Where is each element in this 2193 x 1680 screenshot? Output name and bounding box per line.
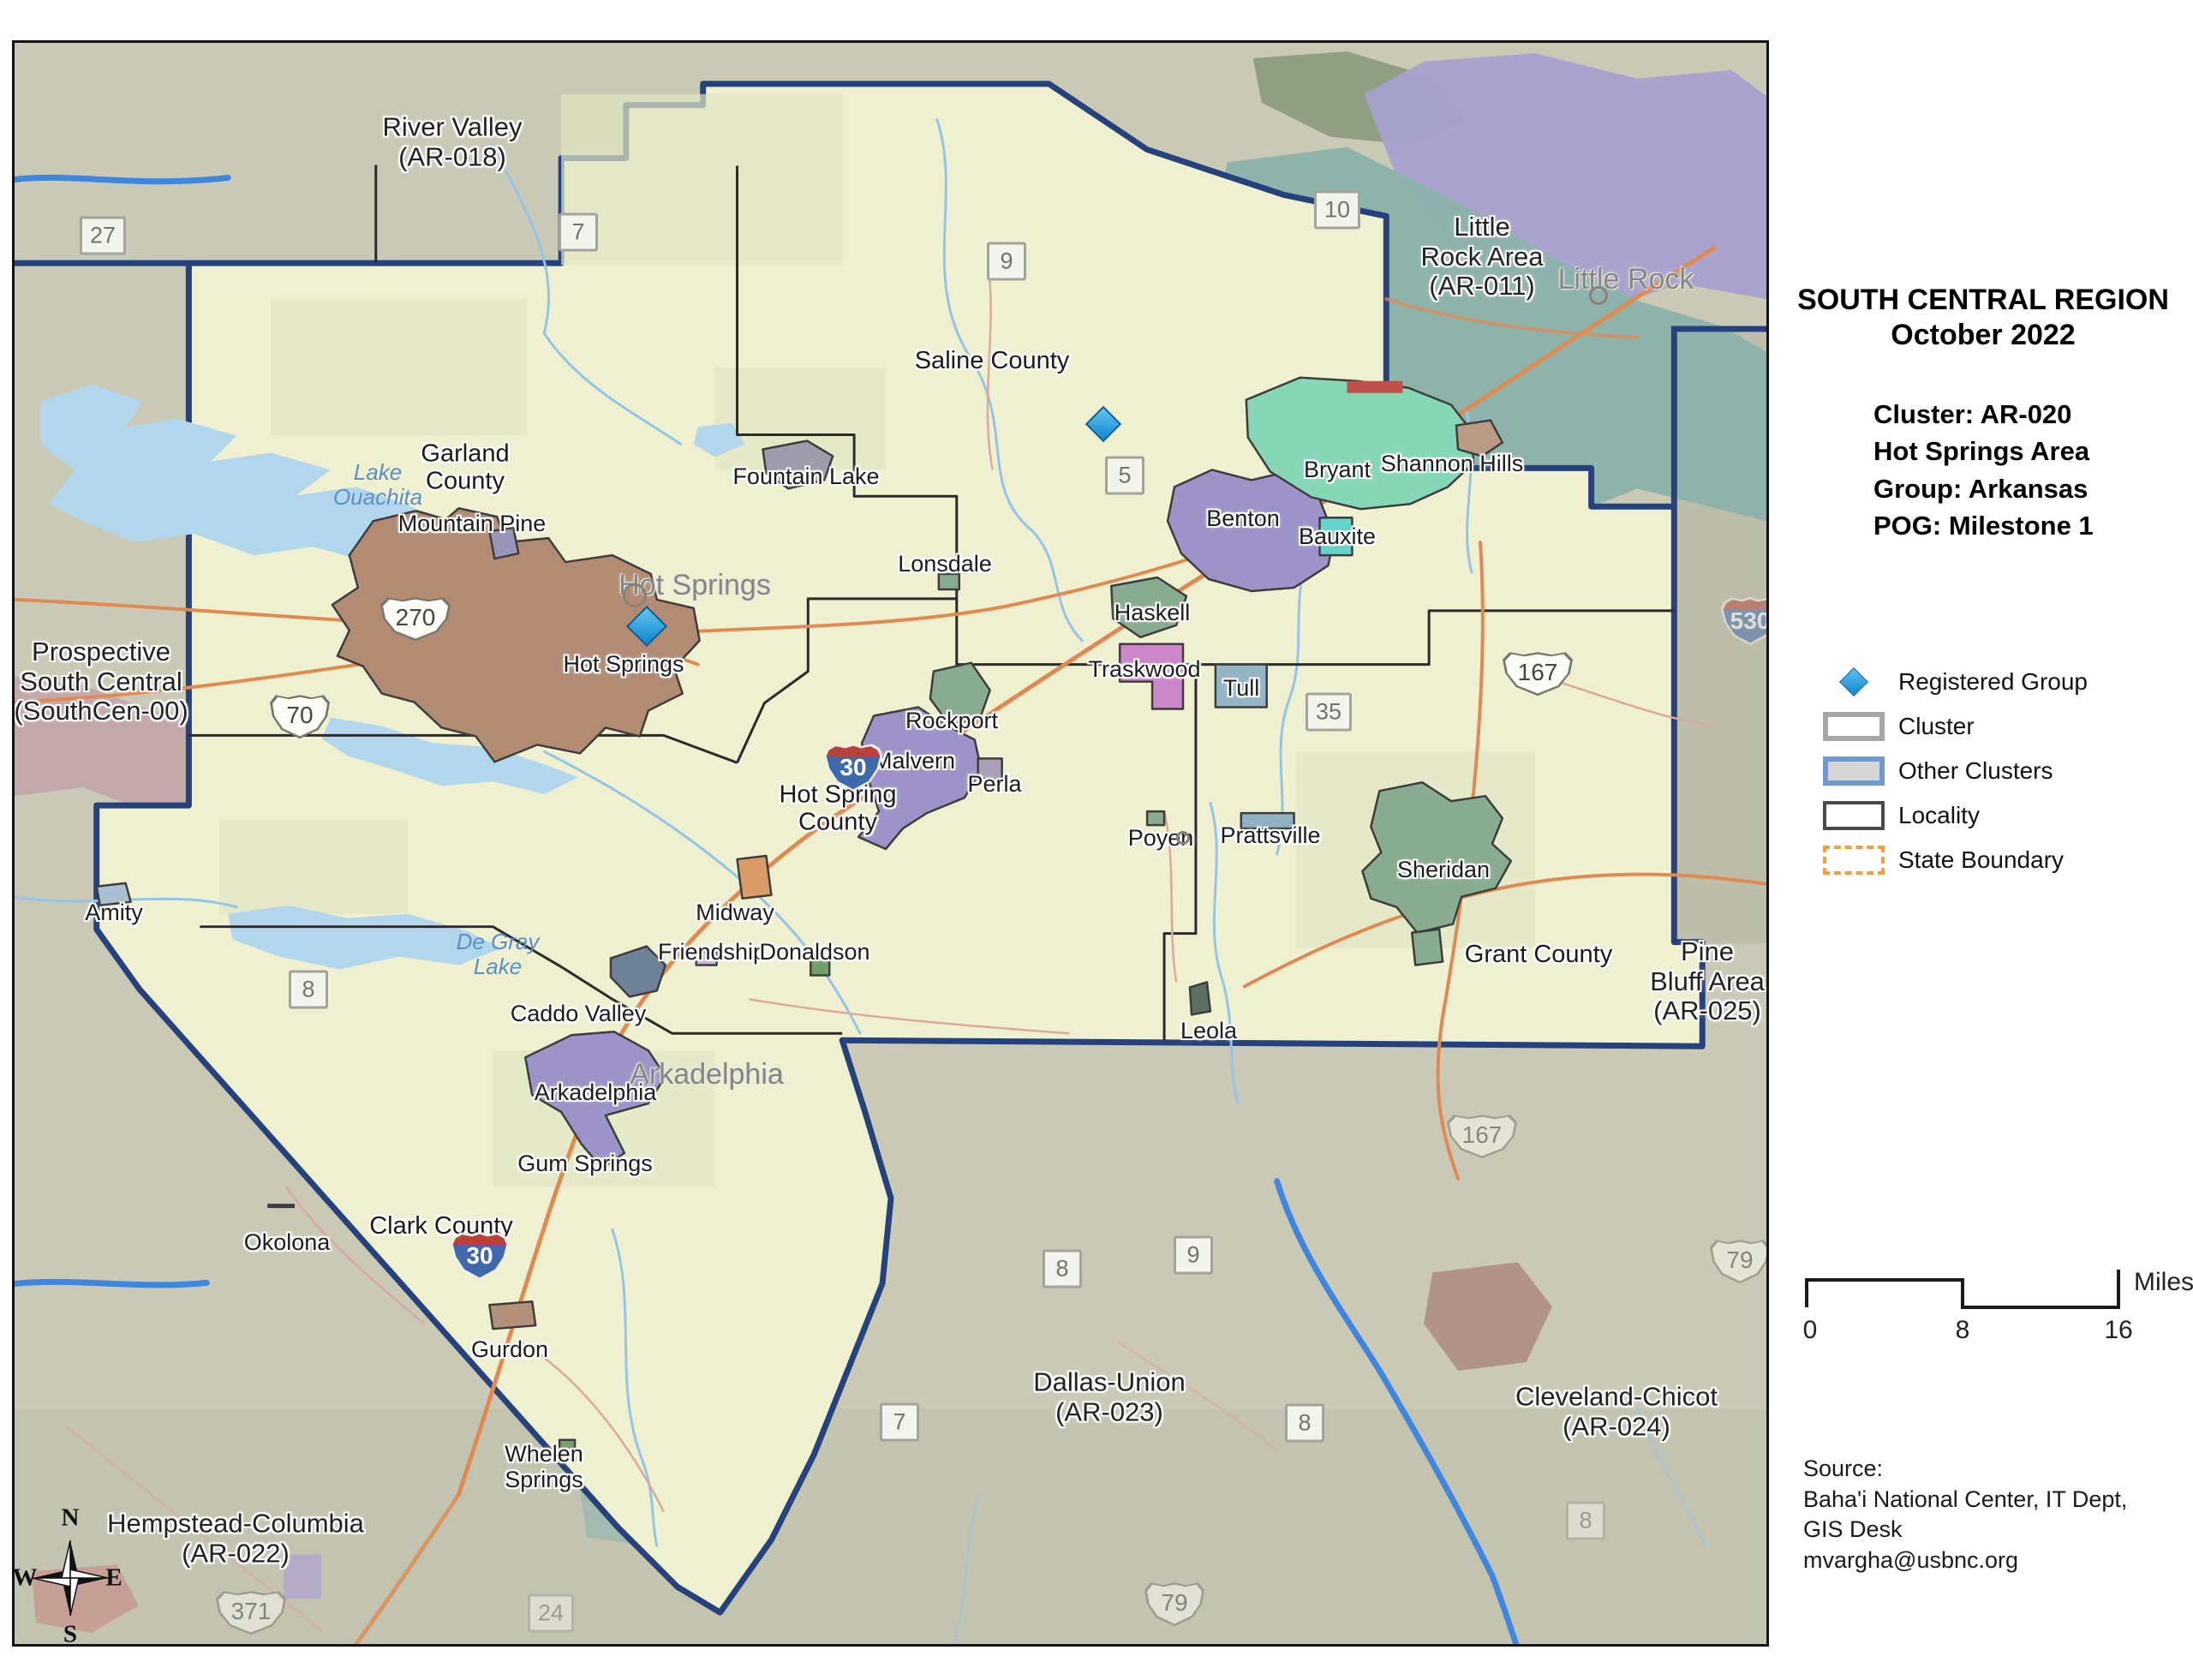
us-shield-number: 167 bbox=[1518, 659, 1558, 686]
label-midway-line: Midway bbox=[696, 900, 774, 925]
label-grant-county: Grant County bbox=[1465, 941, 1612, 968]
legend-swatch-cell bbox=[1816, 672, 1891, 692]
label-lake-ouachita-line: Lake bbox=[333, 460, 422, 485]
label-little-rock-metro-line: Little Rock bbox=[1558, 263, 1694, 296]
label-whelen-springs-line: Whelen bbox=[505, 1441, 583, 1467]
label-benton: Benton bbox=[1206, 505, 1280, 531]
label-perla: Perla bbox=[967, 771, 1021, 797]
label-midway: Midway bbox=[696, 900, 774, 925]
legend-swatch-cell bbox=[1816, 801, 1891, 830]
cluster-info-group: Group: Arkansas bbox=[1873, 470, 2094, 507]
legend-item-diamond: Registered Group bbox=[1816, 660, 2184, 704]
legend-swatch-other bbox=[1823, 756, 1885, 786]
label-whelen-springs-line: Springs bbox=[505, 1467, 583, 1492]
highway-shield-8: 8 bbox=[1285, 1404, 1324, 1443]
highway-shield-9: 9 bbox=[987, 242, 1026, 281]
cluster-info-pog: POG: Milestone 1 bbox=[1873, 507, 2094, 544]
label-dallas-union-line: (AR-023) bbox=[1033, 1397, 1185, 1427]
label-saline-county: Saline County bbox=[915, 347, 1070, 374]
label-okolona: Okolona bbox=[244, 1229, 331, 1255]
registered-group-diamond-icon bbox=[1085, 406, 1121, 442]
hot-springs-town-dot bbox=[623, 583, 647, 607]
label-prospective-south-central-line: South Central bbox=[14, 667, 188, 697]
label-amity-line: Amity bbox=[85, 900, 143, 925]
label-garland-county: GarlandCounty bbox=[421, 440, 509, 496]
highway-shield-30: 30 bbox=[823, 742, 883, 793]
label-hempstead-columbia-line: Hempstead-Columbia bbox=[107, 1509, 364, 1539]
source-line: Source: bbox=[1803, 1454, 2127, 1485]
label-perla-line: Perla bbox=[967, 771, 1021, 797]
label-pine-bluff-area-line: Pine bbox=[1650, 937, 1765, 967]
map-canvas: N E S W River Valley(AR-018)LittleRock A… bbox=[12, 40, 1769, 1647]
legend-label-locality: Locality bbox=[1898, 802, 1980, 829]
label-fountain-lake: Fountain Lake bbox=[732, 463, 879, 489]
label-saline-county-line: Saline County bbox=[915, 347, 1070, 374]
map-title-line1: SOUTH CENTRAL REGION bbox=[1782, 283, 2184, 318]
scale-tick-0: 0 bbox=[1803, 1316, 1818, 1345]
legend-swatch-cell bbox=[1816, 846, 1891, 875]
highway-shield-8: 8 bbox=[1043, 1250, 1082, 1288]
label-grant-county-line: Grant County bbox=[1465, 941, 1612, 968]
label-mountain-pine: Mountain Pine bbox=[398, 511, 547, 536]
legend-swatch-cell bbox=[1816, 756, 1891, 786]
source-note: Source: Baha'i National Center, IT Dept,… bbox=[1803, 1454, 2127, 1576]
map-title-line2: October 2022 bbox=[1782, 318, 2184, 353]
label-de-gray-lake-line: De Gray bbox=[457, 930, 540, 954]
legend-label-state: State Boundary bbox=[1898, 846, 2064, 874]
legend-label-other: Other Clusters bbox=[1898, 757, 2053, 785]
scale-unit: Miles bbox=[2134, 1268, 2193, 1297]
label-pine-bluff-area-line: (AR-025) bbox=[1650, 996, 1765, 1026]
label-lake-ouachita-line: Ouachita bbox=[333, 485, 422, 510]
label-bauxite: Bauxite bbox=[1299, 523, 1376, 549]
registered-group-marker bbox=[632, 612, 661, 641]
highway-shield-371: 371 bbox=[216, 1587, 286, 1636]
label-cleveland-chicot-line: Cleveland-Chicot bbox=[1515, 1382, 1718, 1412]
label-traskwood: Traskwood bbox=[1088, 656, 1200, 682]
label-bryant: Bryant bbox=[1304, 457, 1371, 482]
legend-item-cluster: Cluster bbox=[1816, 704, 2184, 749]
highway-shield-70: 70 bbox=[270, 691, 330, 740]
scale-bar-graphic bbox=[1803, 1266, 2180, 1318]
source-line: Baha'i National Center, IT Dept, bbox=[1803, 1485, 2127, 1516]
label-friendship: Friendship bbox=[658, 939, 766, 965]
legend-item-state: State Boundary bbox=[1816, 838, 2184, 882]
label-prospective-south-central-line: (SouthCen-00) bbox=[14, 697, 188, 726]
label-prospective-south-central-line: Prospective bbox=[14, 637, 188, 667]
label-little-rock-area-line: (AR-011) bbox=[1420, 272, 1543, 302]
label-prospective-south-central: ProspectiveSouth Central(SouthCen-00) bbox=[14, 637, 188, 726]
label-de-gray-lake-line: Lake bbox=[457, 954, 540, 979]
highway-shield-7: 7 bbox=[559, 213, 598, 252]
label-tull: Tull bbox=[1223, 675, 1260, 701]
cluster-info-name: Hot Springs Area bbox=[1873, 433, 2094, 469]
us-shield-number: 79 bbox=[1726, 1247, 1753, 1274]
label-lonsdale-line: Lonsdale bbox=[898, 551, 992, 577]
label-dallas-union: Dallas-Union(AR-023) bbox=[1033, 1367, 1185, 1426]
label-arkadelphia-metro: Arkadelphia bbox=[630, 1058, 784, 1091]
legend-swatch-cluster bbox=[1823, 712, 1885, 741]
label-pine-bluff-area: PineBluff Area(AR-025) bbox=[1650, 937, 1765, 1026]
highway-shield-35: 35 bbox=[1306, 693, 1352, 732]
source-line: GIS Desk bbox=[1803, 1515, 2127, 1545]
us-shield-number: 70 bbox=[286, 702, 313, 729]
little-rock-town-dot bbox=[1589, 286, 1608, 305]
interstate-shield-number: 530 bbox=[1730, 607, 1769, 635]
compass-w: W bbox=[13, 1564, 38, 1593]
label-donaldson: Donaldson bbox=[759, 939, 869, 965]
label-malvern-line: Malvern bbox=[873, 748, 955, 774]
label-gurdon: Gurdon bbox=[471, 1336, 548, 1362]
highway-shield-9: 9 bbox=[1174, 1236, 1213, 1275]
label-okolona-line: Okolona bbox=[244, 1229, 331, 1255]
label-traskwood-line: Traskwood bbox=[1088, 656, 1200, 682]
label-friendship-line: Friendship bbox=[658, 939, 766, 965]
cluster-info-cluster: Cluster: AR-020 bbox=[1873, 396, 2094, 433]
label-arkadelphia-metro-line: Arkadelphia bbox=[630, 1058, 784, 1091]
highway-shield-8: 8 bbox=[289, 971, 328, 1009]
label-leola-line: Leola bbox=[1180, 1018, 1237, 1043]
registered-group-diamond-icon bbox=[626, 606, 667, 647]
legend-swatch-diamond-icon bbox=[1839, 667, 1868, 697]
label-mountain-pine-line: Mountain Pine bbox=[398, 511, 547, 536]
label-fountain-lake-line: Fountain Lake bbox=[732, 463, 879, 489]
label-sheridan: Sheridan bbox=[1397, 857, 1490, 882]
label-river-valley: River Valley(AR-018) bbox=[382, 112, 522, 171]
us-shield-number: 371 bbox=[231, 1598, 272, 1625]
highway-shield-167: 167 bbox=[1503, 648, 1573, 697]
label-bauxite-line: Bauxite bbox=[1299, 523, 1376, 549]
label-dallas-union-line: Dallas-Union bbox=[1033, 1367, 1185, 1397]
label-donaldson-line: Donaldson bbox=[759, 939, 869, 965]
highway-shield-167: 167 bbox=[1447, 1110, 1517, 1160]
label-hempstead-columbia: Hempstead-Columbia(AR-022) bbox=[107, 1509, 364, 1568]
legend-swatch-cell bbox=[1816, 712, 1891, 741]
label-benton-line: Benton bbox=[1206, 505, 1280, 531]
label-shannon-hills-line: Shannon Hills bbox=[1381, 451, 1524, 476]
highway-shield-530: 530 bbox=[1720, 595, 1769, 647]
label-lake-ouachita: LakeOuachita bbox=[333, 460, 422, 510]
map-document: N E S W River Valley(AR-018)LittleRock A… bbox=[0, 0, 2193, 1680]
label-garland-county-line: Garland bbox=[421, 440, 509, 468]
label-garland-county-line: County bbox=[421, 468, 509, 495]
label-rockport-line: Rockport bbox=[905, 708, 998, 733]
label-hempstead-columbia-line: (AR-022) bbox=[107, 1539, 364, 1569]
compass-n: N bbox=[62, 1504, 80, 1533]
highway-shield-30: 30 bbox=[450, 1230, 510, 1282]
label-bryant-line: Bryant bbox=[1304, 457, 1371, 482]
label-hot-springs: Hot Springs bbox=[563, 651, 684, 677]
highway-shield-270: 270 bbox=[380, 593, 451, 643]
legend-swatch-locality bbox=[1823, 801, 1885, 830]
label-river-valley-line: River Valley bbox=[382, 112, 522, 142]
highway-shield-5: 5 bbox=[1105, 457, 1144, 495]
label-pine-bluff-area-line: Bluff Area bbox=[1650, 967, 1765, 997]
highway-shield-24: 24 bbox=[528, 1594, 574, 1633]
label-little-rock-area-line: Rock Area bbox=[1420, 242, 1543, 272]
highway-shield-10: 10 bbox=[1314, 191, 1360, 230]
label-caddo-valley: Caddo Valley bbox=[511, 1001, 647, 1026]
label-hot-spring-county-line: County bbox=[779, 809, 896, 836]
legend-item-locality: Locality bbox=[1816, 793, 2184, 838]
poyen-town-dot bbox=[1176, 831, 1190, 845]
label-rockport: Rockport bbox=[905, 708, 998, 733]
us-shield-number: 79 bbox=[1161, 1589, 1187, 1617]
legend: Registered GroupClusterOther ClustersLoc… bbox=[1816, 660, 2184, 882]
highway-shield-79: 79 bbox=[1710, 1235, 1769, 1285]
label-malvern: Malvern bbox=[873, 748, 955, 774]
label-gum-springs-line: Gum Springs bbox=[517, 1151, 653, 1176]
label-leola: Leola bbox=[1180, 1018, 1237, 1043]
label-hot-springs-line: Hot Springs bbox=[563, 651, 684, 677]
cluster-info: Cluster: AR-020 Hot Springs Area Group: … bbox=[1873, 396, 2094, 545]
label-shannon-hills: Shannon Hills bbox=[1381, 451, 1524, 476]
compass-s: S bbox=[63, 1621, 77, 1647]
interstate-shield-number: 30 bbox=[840, 754, 866, 781]
scale-tick-16: 16 bbox=[2104, 1316, 2132, 1345]
label-little-rock-metro: Little Rock bbox=[1558, 263, 1694, 296]
label-gurdon-line: Gurdon bbox=[471, 1336, 548, 1362]
legend-item-other: Other Clusters bbox=[1816, 749, 2184, 793]
legend-label-cluster: Cluster bbox=[1898, 713, 1975, 740]
label-river-valley-line: (AR-018) bbox=[382, 142, 522, 172]
label-haskell-line: Haskell bbox=[1114, 600, 1191, 625]
legend-swatch-state bbox=[1823, 846, 1885, 875]
registered-group-marker bbox=[1091, 411, 1116, 437]
label-tull-line: Tull bbox=[1223, 675, 1260, 701]
legend-label-diamond: Registered Group bbox=[1898, 668, 2088, 696]
label-prattsville-line: Prattsville bbox=[1220, 822, 1320, 848]
label-amity: Amity bbox=[85, 900, 143, 925]
label-gum-springs: Gum Springs bbox=[517, 1151, 653, 1176]
label-lonsdale: Lonsdale bbox=[898, 551, 992, 577]
highway-shield-27: 27 bbox=[80, 217, 126, 255]
us-shield-number: 270 bbox=[396, 604, 436, 631]
us-shield-number: 167 bbox=[1462, 1121, 1503, 1149]
label-cleveland-chicot: Cleveland-Chicot(AR-024) bbox=[1515, 1382, 1718, 1441]
highway-shield-8: 8 bbox=[1566, 1502, 1605, 1540]
label-whelen-springs: WhelenSprings bbox=[505, 1441, 583, 1492]
scale-tick-8: 8 bbox=[1956, 1316, 1970, 1345]
label-prattsville: Prattsville bbox=[1220, 822, 1320, 848]
label-little-rock-area: LittleRock Area(AR-011) bbox=[1420, 212, 1543, 302]
label-little-rock-area-line: Little bbox=[1420, 212, 1543, 242]
label-caddo-valley-line: Caddo Valley bbox=[511, 1001, 647, 1026]
highway-shield-79: 79 bbox=[1144, 1578, 1204, 1628]
label-haskell: Haskell bbox=[1114, 600, 1191, 625]
highway-shield-7: 7 bbox=[880, 1403, 919, 1442]
map-title: SOUTH CENTRAL REGION October 2022 bbox=[1782, 283, 2184, 354]
source-line: mvargha@usbnc.org bbox=[1803, 1545, 2127, 1576]
label-de-gray-lake: De GrayLake bbox=[457, 930, 540, 979]
scale-bar: 0 8 16 Miles bbox=[1803, 1266, 2180, 1360]
label-cleveland-chicot-line: (AR-024) bbox=[1515, 1412, 1718, 1442]
label-sheridan-line: Sheridan bbox=[1397, 857, 1490, 882]
map-overlay: N E S W River Valley(AR-018)LittleRock A… bbox=[15, 43, 1766, 1644]
interstate-shield-number: 30 bbox=[466, 1242, 493, 1270]
